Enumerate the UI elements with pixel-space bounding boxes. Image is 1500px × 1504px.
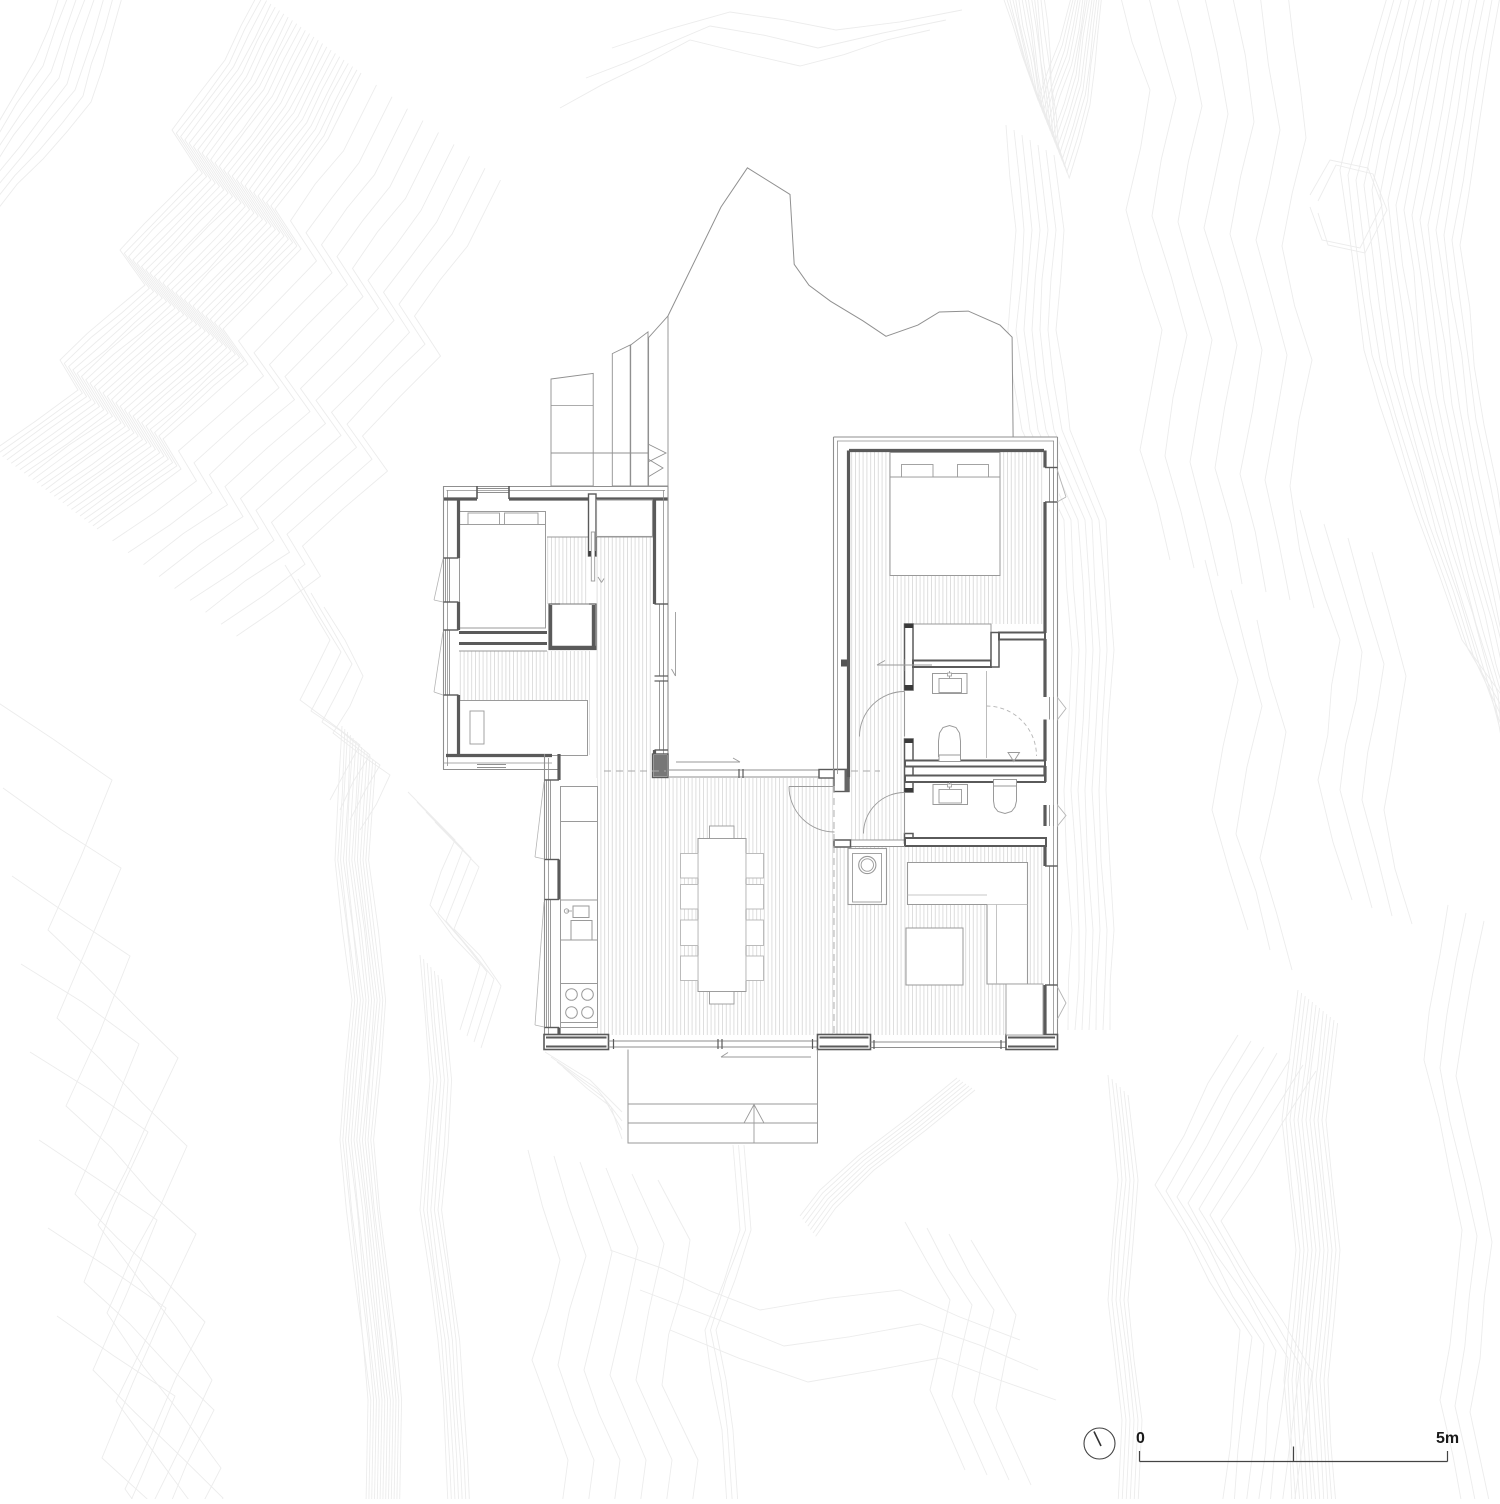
svg-text:0: 0 xyxy=(1136,1430,1145,1447)
svg-text:5m: 5m xyxy=(1436,1430,1459,1447)
